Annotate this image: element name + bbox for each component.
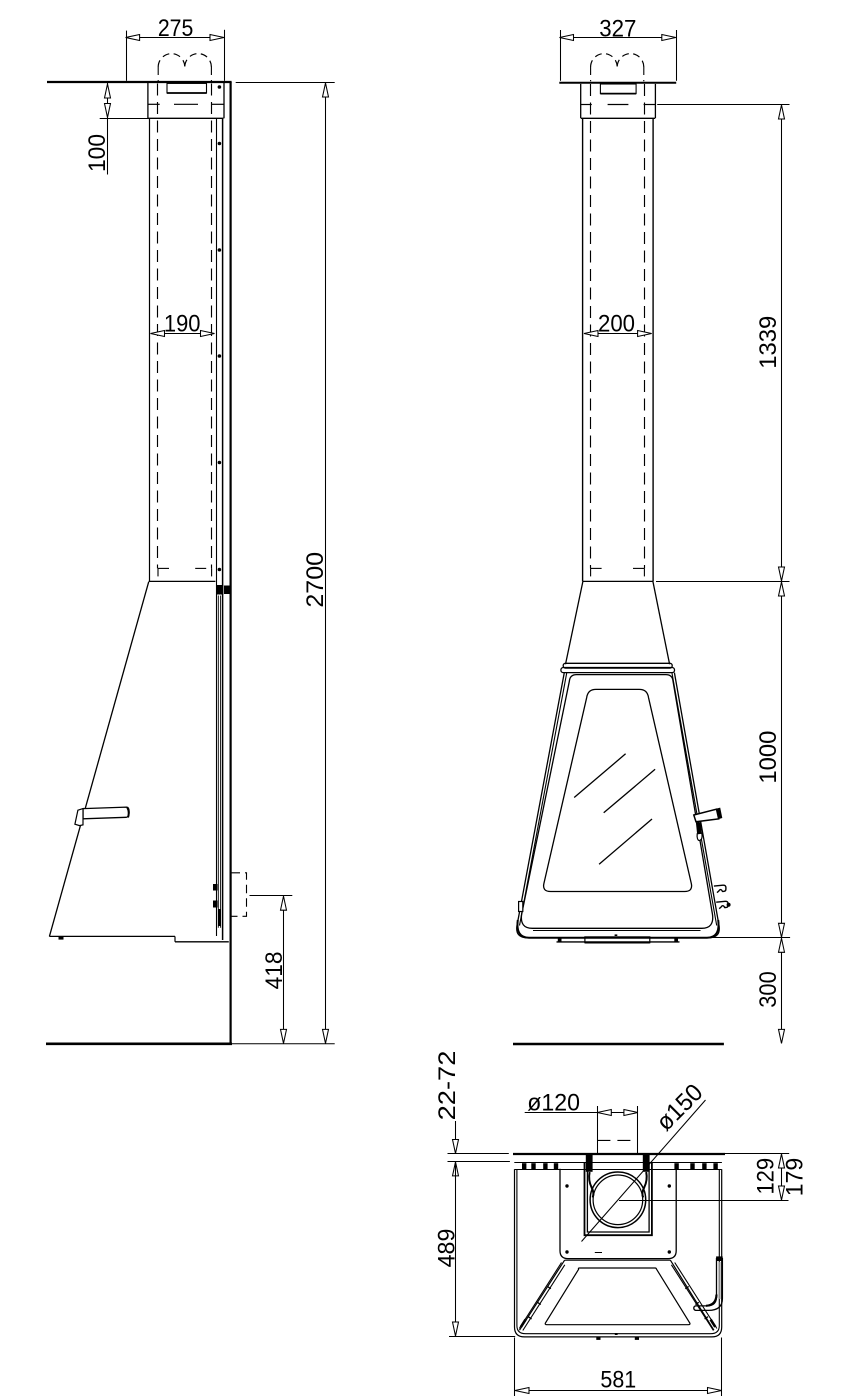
svg-text:190: 190 (164, 310, 201, 337)
svg-text:ø150: ø150 (651, 1079, 708, 1136)
svg-text:1000: 1000 (755, 731, 782, 784)
svg-text:129: 129 (752, 1158, 779, 1195)
svg-text:489: 489 (433, 1229, 460, 1268)
svg-text:2700: 2700 (302, 552, 329, 608)
svg-text:581: 581 (600, 1367, 636, 1394)
svg-text:327: 327 (599, 15, 636, 42)
svg-text:100: 100 (84, 134, 111, 172)
svg-text:ø120: ø120 (527, 1089, 580, 1116)
svg-text:300: 300 (755, 971, 782, 1008)
svg-text:275: 275 (158, 15, 194, 42)
svg-text:418: 418 (261, 951, 288, 989)
svg-text:1339: 1339 (755, 316, 782, 369)
svg-text:200: 200 (598, 310, 635, 337)
svg-text:22-72: 22-72 (434, 1051, 461, 1121)
svg-text:179: 179 (781, 1158, 808, 1196)
